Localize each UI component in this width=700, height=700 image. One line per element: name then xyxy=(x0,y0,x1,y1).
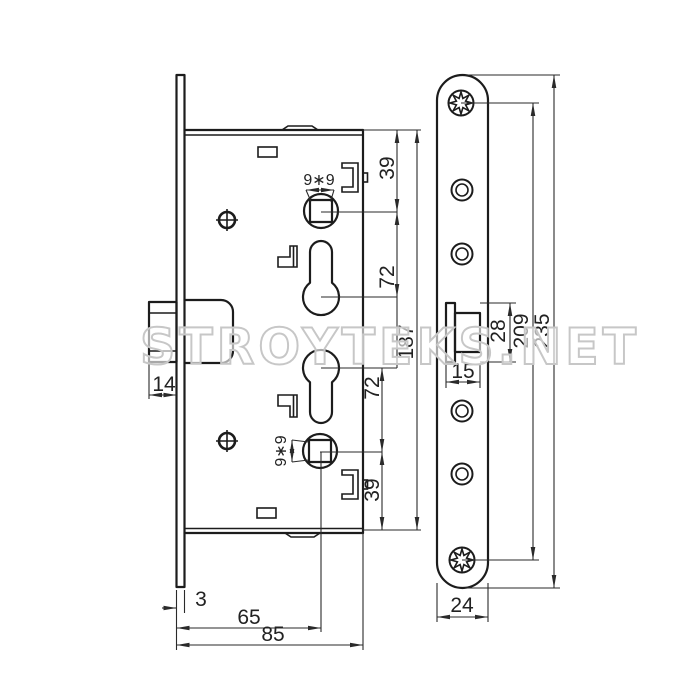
spindle-square-upper xyxy=(310,200,332,222)
dim-label-spindle-to-cylinder-upper: 72 xyxy=(376,265,399,288)
spring-clip-upper xyxy=(342,163,358,192)
dim-label-latch-projection: 14 xyxy=(152,373,176,396)
cylinder-hole-upper xyxy=(303,241,339,315)
dimension-labels: 39 72 187 72 39 9∗9 9∗9 14 3 65 85 15 28… xyxy=(152,156,554,646)
spindle-square-lower xyxy=(309,440,331,462)
dim-label-spindle-square-upper: 9∗9 xyxy=(303,172,334,189)
watermark-text: STROYTEKS.NET xyxy=(140,318,640,376)
dim-label-faceplate-thickness: 3 xyxy=(195,588,207,611)
technical-drawing-canvas: 39 72 187 72 39 9∗9 9∗9 14 3 65 85 15 28… xyxy=(0,0,700,700)
dim-label-backset: 65 xyxy=(237,606,260,629)
dim-label-cylinder-to-spindle-lower: 72 xyxy=(361,376,384,399)
dim-label-faceplate-width: 24 xyxy=(450,594,474,617)
spring-clip-lower xyxy=(342,470,358,499)
lock-drawing: 39 72 187 72 39 9∗9 9∗9 14 3 65 85 15 28… xyxy=(0,0,700,700)
dim-label-spindle-to-bottom: 39 xyxy=(361,478,384,501)
slot-upper xyxy=(258,147,277,157)
slot-lower xyxy=(257,508,276,518)
dim-label-body-depth: 85 xyxy=(261,623,284,646)
dim-label-top-to-spindle: 39 xyxy=(376,156,399,179)
dim-label-spindle-square-lower: 9∗9 xyxy=(273,435,290,466)
